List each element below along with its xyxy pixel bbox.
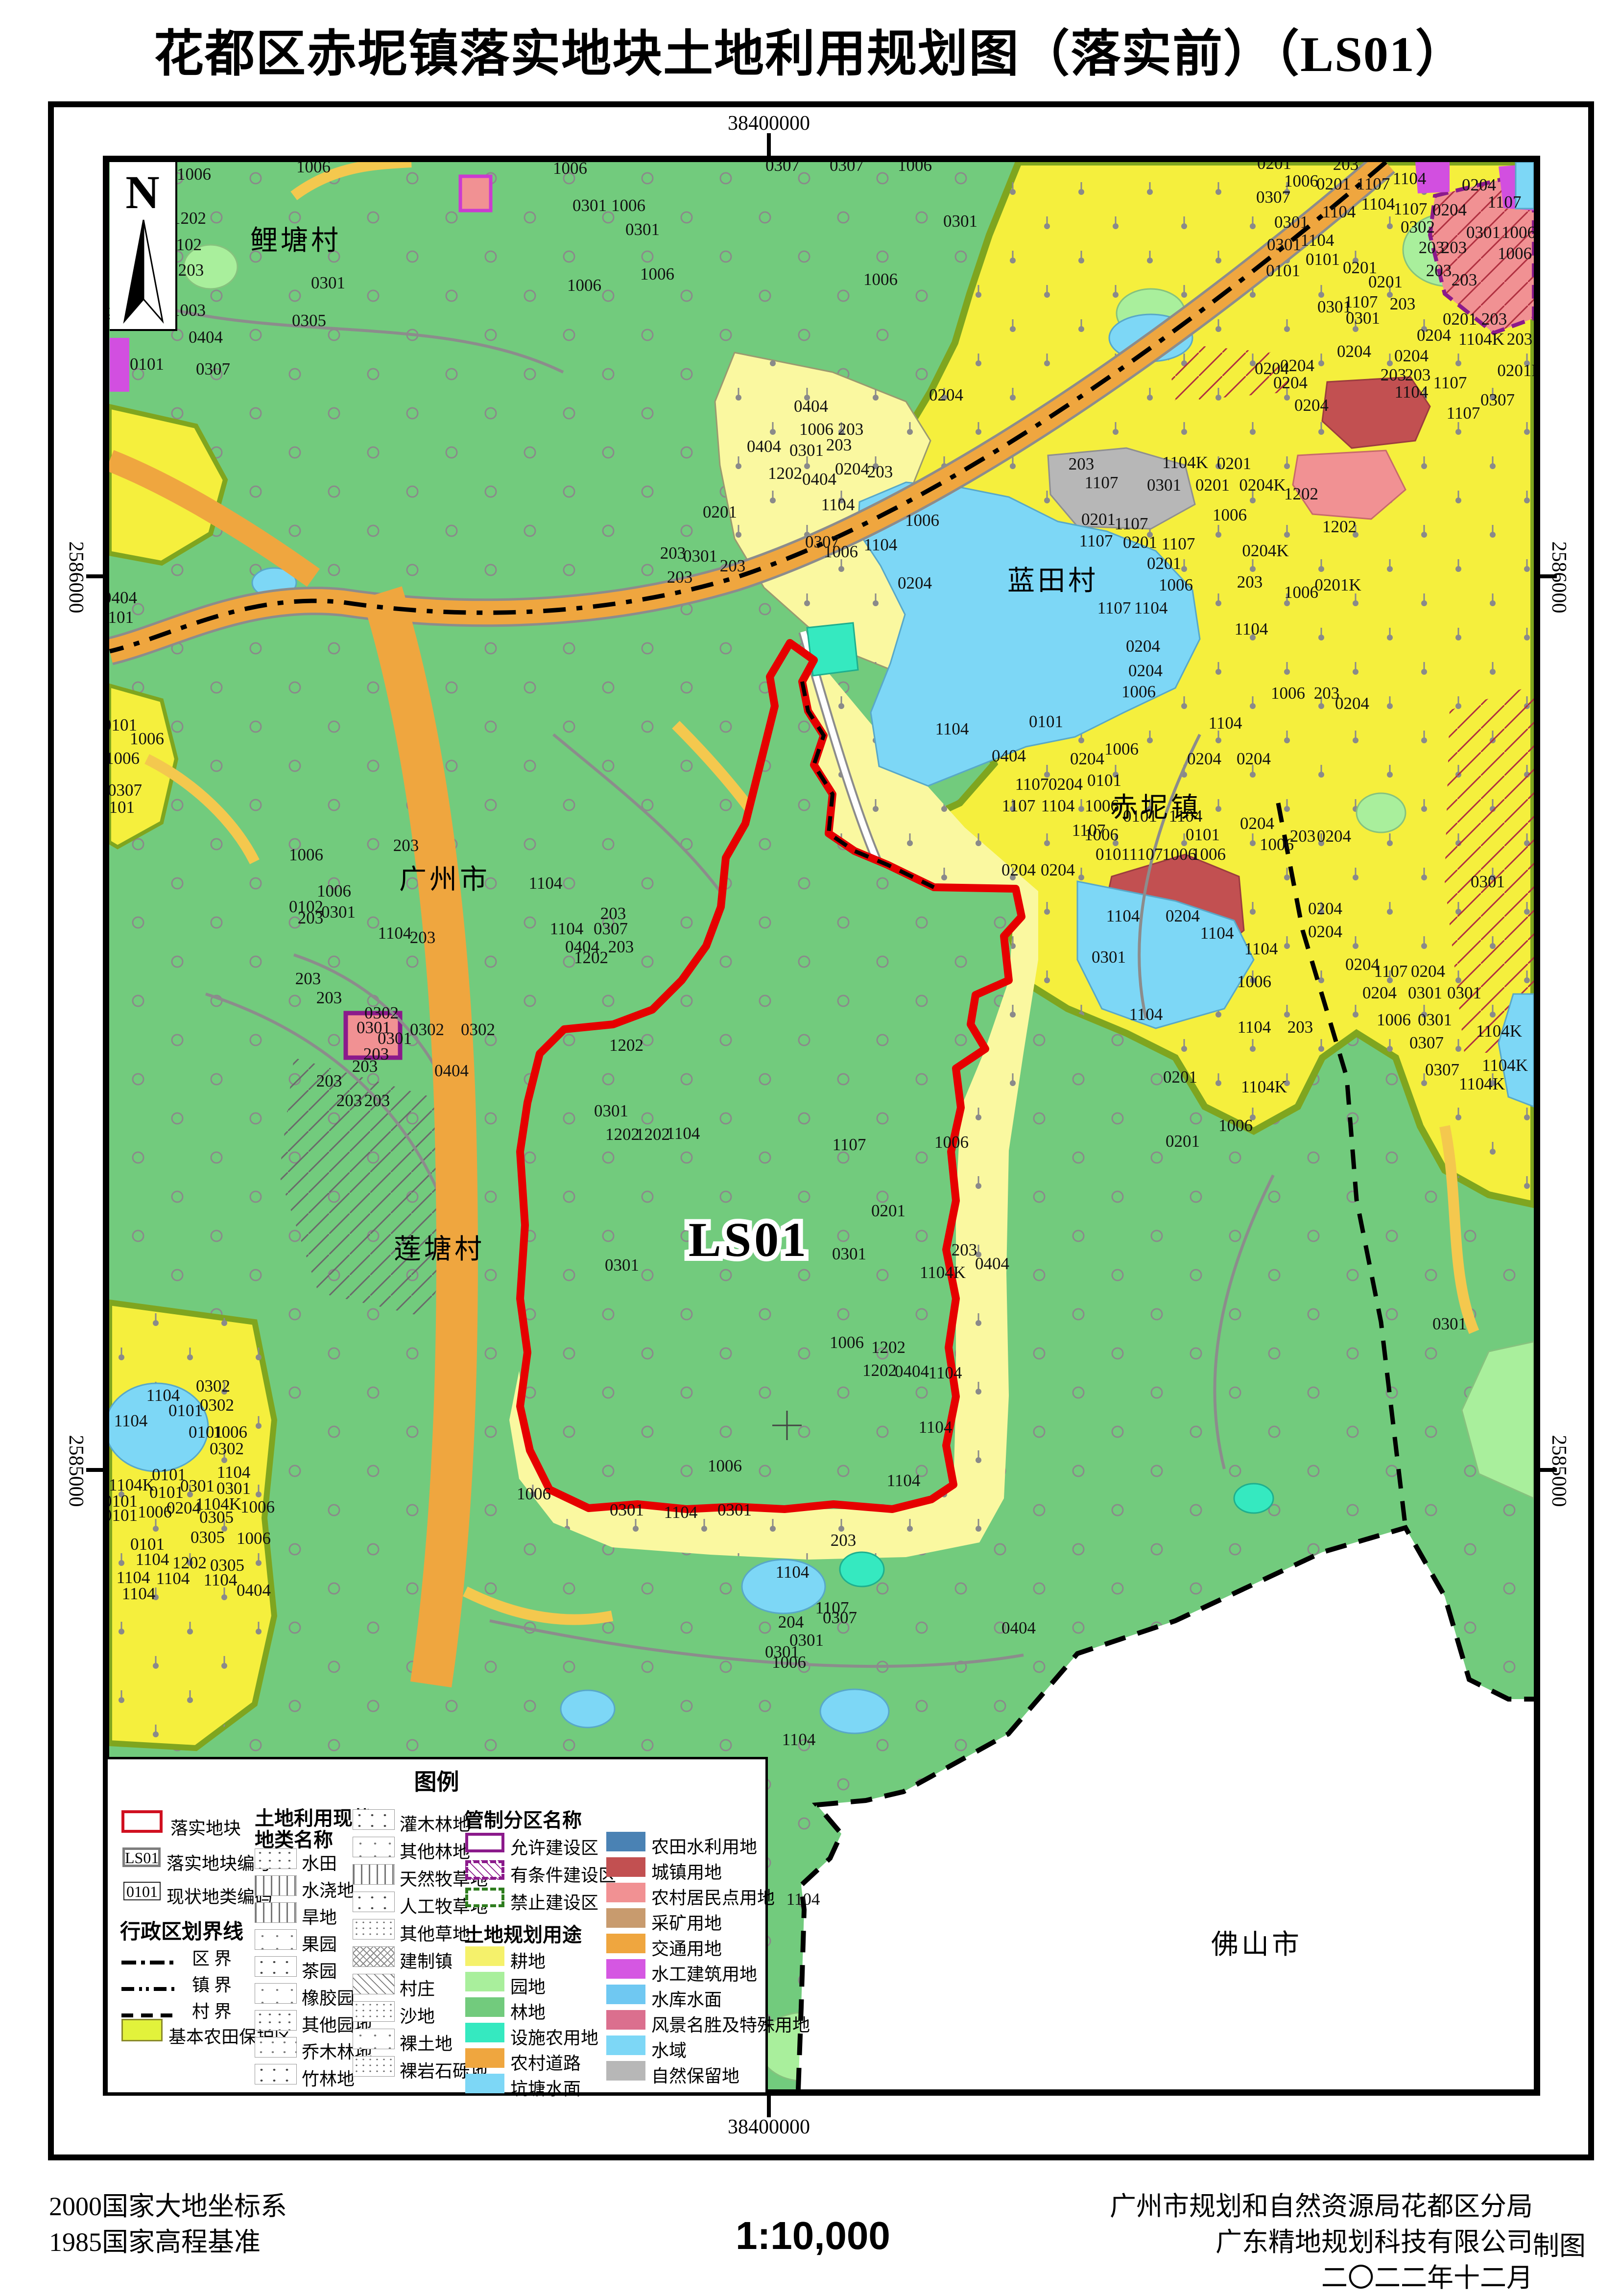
- landcode-label: 1107: [1394, 199, 1428, 218]
- planned-use-label: 耕地: [510, 1947, 546, 1973]
- zone-swatch: [465, 1860, 504, 1880]
- landcode-label: 0302: [196, 1376, 230, 1396]
- landcode-label: 0101: [1266, 261, 1300, 280]
- landcode-label: 0404: [992, 746, 1026, 765]
- landcode-label: 1006: [863, 270, 898, 289]
- planned-use-label: 采矿用地: [651, 1909, 722, 1935]
- landcode-label: 0204K: [1239, 475, 1286, 495]
- landcode-label: 0201: [1195, 475, 1230, 495]
- landtype-pattern-label: 建制镇: [400, 1947, 453, 1973]
- planned-use-label: 园地: [510, 1973, 546, 1998]
- landcode-label: 203: [826, 435, 852, 454]
- landcode-label: 0301: [1408, 983, 1442, 1002]
- grid-tick-right-upper: [1540, 574, 1557, 578]
- landcode-label: 1104: [156, 1569, 190, 1588]
- place-label: 赤坭镇: [1110, 793, 1201, 823]
- legend-admin-row: 村 界: [121, 1997, 232, 2017]
- landcode-label: 1202: [768, 464, 802, 483]
- place-label: 广州市: [399, 865, 490, 895]
- landcode-label: 203: [352, 1057, 378, 1076]
- landcode-label: 203: [867, 462, 893, 481]
- planned-use-label: 林地: [510, 1998, 546, 2024]
- landtype-pattern-swatch: [353, 1974, 395, 1994]
- landcode-label: 203: [1419, 238, 1445, 257]
- landcode-label: 0204: [1308, 922, 1342, 941]
- landcode-label: 203: [1426, 261, 1452, 280]
- landcode-label: 1202: [1284, 484, 1318, 503]
- landcode-label: 1006: [109, 749, 140, 768]
- landcode-label: 1006: [296, 162, 331, 176]
- landcode-label: 1006: [1218, 1116, 1253, 1135]
- credit-label: 制图: [1533, 2224, 1586, 2263]
- landcode-label: 0204: [1166, 906, 1200, 925]
- landcode-label: 0301: [832, 1244, 866, 1263]
- landcode-label: 1006: [517, 1484, 551, 1503]
- planned-use-label: 坑塘水面: [510, 2075, 581, 2100]
- landcode-label: 203: [1381, 365, 1406, 384]
- landcode-label: 1104: [1041, 796, 1075, 815]
- landcode-label: 1104: [887, 1471, 921, 1490]
- grid-tick-top: [767, 133, 771, 156]
- landcode-label: 0404: [895, 1362, 929, 1381]
- landtype-pattern-swatch: [255, 1983, 297, 2004]
- landcode-label: 0307: [594, 919, 628, 938]
- landcode-label: 0201: [871, 1201, 905, 1220]
- landtype-pattern-swatch: [353, 2029, 395, 2049]
- planned-use-swatch: [606, 2036, 645, 2055]
- landcode-label: 0302: [410, 1020, 444, 1039]
- landtype-pattern-swatch: [255, 1902, 297, 1923]
- planned-use-label: 农田水利用地: [651, 1833, 757, 1858]
- landcode-label: 1202: [862, 1361, 897, 1380]
- landcode-label: 1006: [1260, 835, 1294, 854]
- landcode-label: 203: [1069, 454, 1095, 473]
- landtype-pattern-label: 旱地: [302, 1903, 337, 1929]
- landcode-label: 0204: [1240, 814, 1274, 833]
- legend-title: 图例: [108, 1764, 765, 1797]
- landcode-label: 1104: [1244, 939, 1278, 958]
- landcode-label: 0101: [1087, 771, 1121, 790]
- landcode-label: 1202: [609, 1036, 643, 1055]
- landcode-label: 1202: [605, 1125, 640, 1144]
- landcode-label: 203: [393, 836, 419, 855]
- planned-use-swatch: [606, 1908, 645, 1928]
- landcode-label: 1107: [1129, 845, 1163, 864]
- planned-use-label: 农村道路: [510, 2049, 581, 2075]
- zone-label: 禁止建设区: [510, 1889, 598, 1914]
- landcode-label: 1006: [130, 729, 164, 748]
- legend-admin-row: 镇 界: [121, 1971, 232, 1990]
- landtype-pattern-swatch: [353, 1946, 395, 1967]
- planned-use-swatch: [606, 2010, 645, 2030]
- grid-coord-top: 38400000: [671, 112, 867, 135]
- landcode-label: 1104: [204, 1570, 238, 1589]
- landcode-label: 0307: [823, 1608, 857, 1627]
- landcode-label: 1006: [1191, 845, 1226, 864]
- landcode-label: 0301: [1471, 872, 1505, 891]
- planned-use-swatch: [606, 1857, 645, 1877]
- landtype-pattern-swatch: [353, 1919, 395, 1940]
- landcode-label: 0301: [1447, 983, 1481, 1002]
- landcode-label: 1006: [1084, 825, 1119, 844]
- landcode-label: 0404: [1001, 1618, 1036, 1637]
- landtype-pattern-swatch: [255, 2010, 297, 2031]
- landcode-label: 0305: [191, 1528, 225, 1547]
- landcode-label: 0101: [109, 798, 135, 817]
- landcode-label: 1006: [1121, 682, 1156, 701]
- landcode-label: 1006: [1377, 1010, 1411, 1029]
- landcode-label: 1104: [664, 1503, 698, 1522]
- landtype-pattern-label: 水田: [302, 1849, 337, 1875]
- grid-tick-left-upper: [86, 574, 103, 578]
- landtype-pattern-swatch: [255, 2064, 297, 2084]
- landcode-label: 1104K: [920, 1263, 966, 1282]
- landtype-pattern-label: 裸土地: [400, 2030, 453, 2055]
- landcode-label: 203: [831, 1531, 857, 1550]
- landcode-label: 1006: [1284, 583, 1318, 602]
- landcode-label: 0307: [196, 359, 230, 379]
- landcode-label: 203: [410, 928, 436, 947]
- landcode-label: 203: [667, 568, 693, 587]
- landcode-label: 1006: [1501, 223, 1534, 242]
- landcode-label: 0305: [199, 1508, 234, 1527]
- landcode-label: 0204: [1317, 827, 1351, 846]
- landcode-label: 0101: [1029, 712, 1063, 731]
- landcode-label: 1104: [786, 1890, 820, 1909]
- landcode-label: 203: [316, 1071, 342, 1090]
- landtype-pattern-swatch: [353, 1837, 395, 1857]
- landcode-label: 0201: [1217, 454, 1251, 473]
- landcode-label: 1006: [830, 1333, 864, 1352]
- landtype-pattern-label: 其他草地: [400, 1920, 470, 1945]
- landcode-label: 0201: [703, 502, 737, 521]
- landcode-label: 1104: [1395, 382, 1429, 402]
- landcode-label: 0404: [747, 437, 781, 456]
- landcode-label: 1107: [1488, 192, 1522, 212]
- landcode-label: 1104: [122, 1584, 156, 1603]
- landcode-label: 0204: [1187, 749, 1221, 768]
- legend-plot-boundary-label: 落实地块: [170, 1814, 241, 1840]
- landcode-label: 1006: [1104, 739, 1139, 758]
- legend-plot-boundary-symbol: [121, 1810, 163, 1833]
- legend-admin-row: 区 界: [121, 1944, 232, 1964]
- landcode-label: 0307: [1409, 1033, 1444, 1052]
- landcode-label: 203: [1452, 270, 1477, 289]
- landcode-label: 0204: [898, 573, 932, 592]
- landcode-label: 0302: [200, 1396, 234, 1415]
- place-label: 佛山市: [1211, 1930, 1302, 1960]
- landcode-label: 1104: [821, 495, 855, 514]
- planned-use-swatch: [465, 2048, 504, 2068]
- planned-use-swatch: [606, 1934, 645, 1953]
- landcode-label: 1107: [1097, 598, 1131, 617]
- map-scale: 1:10,000: [686, 2213, 940, 2258]
- landcode-label: 0204: [1128, 661, 1163, 680]
- landcode-label: 1104: [1322, 202, 1356, 221]
- landcode-label: 0301: [605, 1255, 639, 1275]
- landcode-label: 0101: [130, 355, 164, 374]
- planned-use-label: 交通用地: [651, 1935, 722, 1960]
- landcode-label: 1104K: [1482, 1056, 1528, 1075]
- landcode-label: 1104: [114, 1411, 148, 1430]
- landcode-label: 1104: [1361, 194, 1395, 213]
- landcode-label: 203: [1287, 1018, 1313, 1037]
- landcode-label: 0301: [625, 220, 660, 239]
- landcode-label: 0404: [794, 397, 828, 416]
- landcode-label: 0404: [802, 470, 836, 489]
- landcode-label: 0101: [1306, 250, 1340, 269]
- landcode-label: 203: [1405, 365, 1431, 384]
- landcode-label: 1006: [177, 165, 211, 184]
- planned-use-swatch: [465, 1972, 504, 1991]
- landcode-label: 0302: [1401, 217, 1435, 237]
- planned-use-swatch: [465, 2023, 504, 2042]
- landcode-label: 203: [952, 1240, 977, 1259]
- landcode-label: 0404: [189, 328, 223, 347]
- landcode-label: 0204: [1411, 962, 1445, 981]
- landcode-label: 1104: [1200, 923, 1234, 943]
- landcode-label: 0204: [1394, 346, 1429, 365]
- landcode-label: 1006: [611, 196, 645, 215]
- landcode-label: 203: [316, 988, 342, 1007]
- zone-label: 有条件建设区: [510, 1861, 616, 1887]
- landcode-label: 0301: [594, 1101, 628, 1120]
- landcode-label: 203: [1441, 238, 1467, 257]
- planned-use-swatch: [606, 1959, 645, 1979]
- landcode-label: 0301: [1274, 213, 1309, 232]
- landcode-label: 0204: [1048, 775, 1083, 794]
- landtype-pattern-swatch: [255, 1956, 297, 1977]
- landcode-label: 203: [298, 908, 324, 927]
- org-line2: 广东精地规划科技有限公司: [1110, 2225, 1533, 2260]
- landcode-label: 1104: [1238, 1018, 1271, 1037]
- landcode-label: 1104: [1301, 231, 1334, 250]
- landcode-label: 0201: [1123, 533, 1157, 552]
- map-title: 花都区赤坭镇落实地块土地利用规划图（落实前）（LS01）: [0, 14, 1620, 86]
- north-arrow: N: [110, 162, 177, 331]
- landtype-pattern-swatch: [353, 1809, 395, 1830]
- zone-swatch: [465, 1833, 504, 1852]
- landcode-label: 0204: [1335, 694, 1369, 713]
- landcode-label: 0307: [1480, 390, 1515, 409]
- plot-id-label: LS01: [689, 1212, 809, 1267]
- landcode-label: 0204: [1001, 860, 1036, 879]
- landtype-pattern-label: 灌木林地: [400, 1810, 470, 1836]
- planned-use-label: 设施农用地: [510, 2024, 598, 2049]
- grid-tick-bottom: [767, 2096, 771, 2117]
- landcode-label: 1104K: [1458, 330, 1504, 349]
- landcode-label: 1107: [1079, 531, 1113, 550]
- landcode-label: 0301: [180, 1476, 214, 1495]
- datum-line2: 1985国家高程基准: [49, 2225, 287, 2260]
- landcode-label: 0201K: [1314, 575, 1361, 594]
- legend-planned-heading: 土地规划用途: [464, 1919, 582, 1947]
- landcode-label: 1104: [667, 1124, 700, 1143]
- landcode-label: 203: [364, 1091, 390, 1110]
- landcode-label: 0301: [683, 546, 717, 566]
- landcode-label: 0204: [1462, 175, 1496, 194]
- landcode-label: 1107: [1162, 534, 1195, 553]
- landcode-label: 0301: [1346, 308, 1380, 328]
- legend-admin-heading: 行政区划界线: [120, 1915, 243, 1945]
- admin-line-symbol: [121, 1961, 178, 1965]
- landcode-label: 1104: [1129, 1005, 1163, 1024]
- landtype-pattern-swatch: [353, 2056, 395, 2077]
- legend-zone-heading: 管制分区名称: [464, 1804, 582, 1833]
- landcode-label: 203: [720, 556, 746, 575]
- place-label: 蓝田村: [1007, 566, 1098, 596]
- landcode-label: 0301: [321, 902, 356, 922]
- landcode-label: 0201K: [1497, 361, 1534, 380]
- landcode-label: 1104: [776, 1562, 810, 1582]
- landcode-label: 203: [1290, 827, 1316, 846]
- grid-coord-left-lower: 2585000: [64, 1373, 88, 1569]
- landcode-label: 203: [336, 1091, 362, 1110]
- landcode-label: 1104: [1106, 906, 1140, 925]
- landcode-label: 1104K: [1241, 1077, 1287, 1096]
- legend-farmland-symbol: [121, 2019, 163, 2041]
- landcode-label: 0307: [830, 162, 864, 175]
- landcode-label: 1202: [1322, 517, 1357, 536]
- landcode-label: 0307: [765, 162, 800, 175]
- planned-use-label: 农村居民点用地: [651, 1884, 775, 1909]
- landcode-label: 203: [1390, 294, 1416, 313]
- landcode-label: 1006: [1498, 244, 1532, 263]
- planned-use-label: 自然保留地: [651, 2062, 739, 2087]
- landcode-label: 0404: [975, 1254, 1009, 1273]
- landcode-label: 0204: [1417, 326, 1451, 345]
- planned-use-label: 风景名胜及特殊用地: [651, 2011, 810, 2036]
- landtype-pattern-label: 水浇地: [302, 1876, 355, 1902]
- landcode-label: 0101: [1096, 845, 1130, 864]
- grid-tick-right-lower: [1540, 1468, 1557, 1472]
- landcode-label: 0204: [1308, 899, 1342, 918]
- landcode-label: 1006: [640, 264, 674, 284]
- landcode-label: 0204: [1337, 342, 1371, 361]
- landcode-label: 1104: [1209, 713, 1242, 733]
- org-line1: 广州市规划和自然资源局花都区分局: [1110, 2189, 1533, 2225]
- landcode-label: 1104: [1393, 169, 1427, 188]
- landcode-label: 1006: [934, 1133, 969, 1152]
- landcode-label: 0204: [1362, 983, 1397, 1002]
- datum-line1: 2000国家大地坐标系: [49, 2189, 287, 2225]
- landcode-label: 1104: [782, 1730, 816, 1749]
- landcode-label: 0101: [109, 1506, 138, 1525]
- planned-use-label: 水工建筑用地: [651, 1960, 757, 1986]
- landcode-label: 0301: [789, 441, 824, 460]
- landcode-label: 1006: [1159, 575, 1193, 594]
- landtype-pattern-label: 竹林地: [302, 2065, 355, 2090]
- landcode-label: 1104: [136, 1550, 169, 1569]
- landcode-label: 0301: [1092, 947, 1126, 967]
- landcode-label: 0301: [1267, 235, 1301, 254]
- landcode-label: 1104: [935, 719, 969, 738]
- landcode-label: 1104: [378, 923, 412, 943]
- landcode-label: 0201: [1163, 1067, 1197, 1087]
- landcode-label: 0302: [210, 1439, 244, 1458]
- landcode-label: 1202: [871, 1338, 905, 1357]
- place-label: 鲤塘村: [250, 226, 341, 256]
- planned-use-label: 城镇用地: [651, 1858, 722, 1884]
- landcode-label: 1006: [240, 1497, 275, 1516]
- landcode-label: 0404: [434, 1061, 469, 1080]
- planned-use-swatch: [606, 1883, 645, 1902]
- landcode-label: 1107: [1433, 373, 1467, 392]
- landcode-label: 1006: [567, 276, 601, 295]
- landtype-pattern-label: 其他林地: [400, 1838, 470, 1863]
- landcode-label: 203: [608, 937, 634, 956]
- planned-use-swatch: [606, 1985, 645, 2004]
- north-arrow-glyph: [110, 211, 177, 329]
- landcode-label: 1104: [1235, 619, 1268, 639]
- legend-landtype-code-symbol: 0101: [123, 1882, 161, 1900]
- zone-swatch: [465, 1888, 504, 1907]
- landcode-label: 203: [178, 260, 204, 280]
- landcode-label: 1006: [1237, 972, 1271, 991]
- place-label: 莲塘村: [394, 1234, 485, 1265]
- landcode-label: 1006: [237, 1529, 271, 1548]
- landtype-pattern-swatch: [255, 2037, 297, 2058]
- landcode-label: 1202: [636, 1125, 670, 1144]
- landcode-label: 0404: [109, 588, 137, 607]
- landtype-pattern-label: 沙地: [400, 2002, 435, 2028]
- landcode-label: 0302: [461, 1020, 495, 1039]
- landcode-label: 1006: [772, 1653, 806, 1672]
- landcode-label: 204: [778, 1612, 804, 1632]
- grid-coord-left-upper: 2586000: [64, 479, 88, 675]
- landcode-label: 1006: [824, 542, 858, 561]
- landcode-label: 1006: [905, 511, 939, 530]
- planned-use-swatch: [465, 1997, 504, 2017]
- landcode-label: 1104K: [1162, 453, 1208, 472]
- landtype-pattern-swatch: [353, 1892, 395, 1912]
- landcode-label: 0204: [1041, 860, 1075, 879]
- landcode-label: 0307: [1425, 1060, 1459, 1079]
- landcode-label: 0204K: [1242, 541, 1288, 560]
- landcode-label: 1104K: [1459, 1074, 1505, 1093]
- landcode-label: 203: [295, 969, 321, 988]
- date-line: 二〇二二年十二月: [1110, 2260, 1533, 2296]
- landcode-label: 0301: [717, 1500, 752, 1519]
- planned-use-swatch: [606, 2061, 645, 2081]
- landcode-label: 203: [1333, 162, 1359, 174]
- landcode-label: 0101: [109, 608, 134, 627]
- landcode-label: 1104K: [1476, 1021, 1522, 1041]
- landcode-label: 1104: [529, 874, 563, 893]
- landcode-label: 0204: [929, 385, 963, 404]
- admin-line-label: 区 界: [192, 1949, 232, 1968]
- landcode-label: 1107: [1085, 473, 1119, 492]
- landcode-label: 1006: [1213, 505, 1247, 524]
- landcode-label: 0201: [1316, 174, 1351, 193]
- landcode-label: 0204: [1432, 200, 1467, 219]
- landcode-label: 0101: [1186, 825, 1220, 844]
- landtype-pattern-swatch: [353, 2001, 395, 2022]
- admin-line-label: 村 界: [192, 2002, 232, 2021]
- landcode-label: 0301: [1147, 475, 1181, 495]
- landcode-label: 1107: [1015, 775, 1049, 794]
- landcode-label: 0201: [1081, 510, 1116, 529]
- landcode-label: 1006: [898, 162, 932, 175]
- admin-line-symbol: [121, 1987, 178, 1991]
- admin-line-symbol: [121, 2013, 178, 2017]
- landtype-pattern-label: 橡胶园: [302, 1984, 355, 2010]
- landcode-label: 1104: [929, 1363, 962, 1382]
- landcode-label: 0301: [610, 1500, 644, 1519]
- zone-label: 允许建设区: [510, 1834, 598, 1859]
- landcode-label: 0204: [1273, 373, 1308, 392]
- landcode-label: 1107: [1447, 403, 1480, 423]
